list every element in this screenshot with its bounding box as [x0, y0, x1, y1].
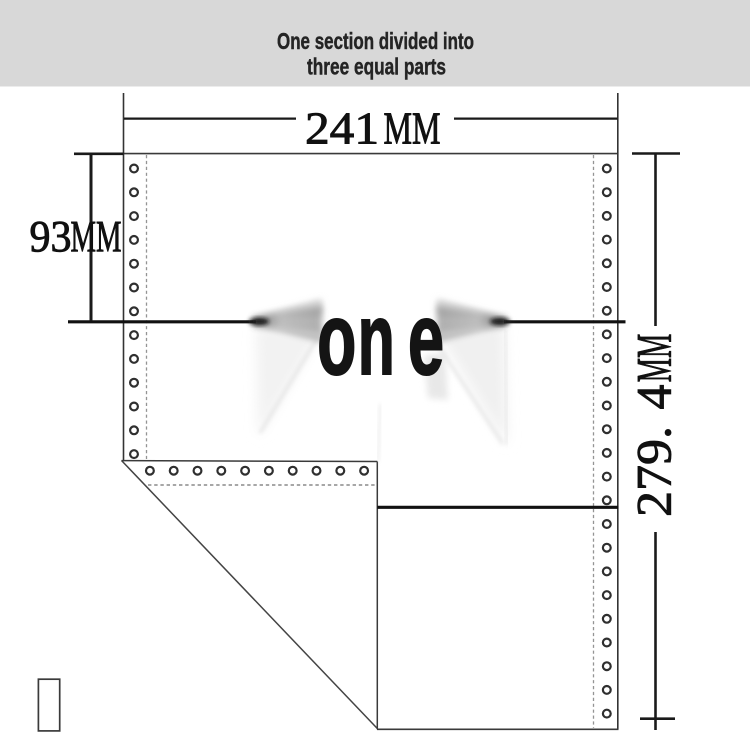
svg-text:o: o — [317, 282, 356, 396]
svg-text:279.: 279. — [625, 426, 681, 517]
svg-text:MM: MM — [384, 102, 441, 153]
svg-text:three equal parts: three equal parts — [307, 54, 446, 80]
svg-text:MM: MM — [71, 212, 122, 261]
svg-text:93: 93 — [30, 212, 72, 261]
svg-text:241: 241 — [305, 102, 379, 153]
svg-text:e: e — [408, 282, 444, 396]
svg-text:4: 4 — [625, 385, 681, 410]
svg-text:n: n — [358, 282, 395, 396]
svg-text:One section divided into: One section divided into — [277, 28, 474, 54]
svg-text:MM: MM — [625, 334, 681, 383]
